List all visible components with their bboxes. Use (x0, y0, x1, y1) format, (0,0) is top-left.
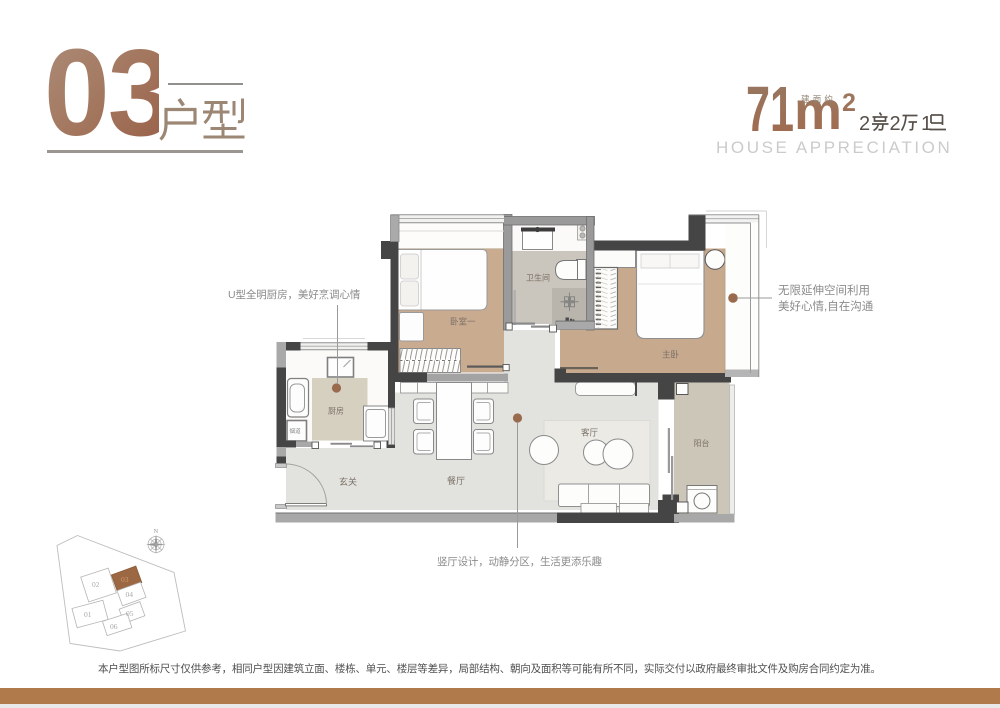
svg-text:2: 2 (890, 113, 901, 135)
svg-text:N: N (154, 528, 159, 535)
svg-text:01: 01 (84, 610, 92, 619)
svg-text:05: 05 (126, 609, 134, 618)
svg-text:03: 03 (121, 575, 129, 584)
svg-text:2: 2 (859, 113, 870, 135)
svg-text:餐厅: 餐厅 (447, 475, 465, 486)
svg-text:02: 02 (92, 580, 100, 589)
svg-text:主卧: 主卧 (662, 350, 680, 360)
svg-text:烟道: 烟道 (290, 427, 302, 435)
svg-text:卫生间: 卫生间 (526, 273, 550, 283)
svg-text:06: 06 (110, 622, 118, 631)
svg-text:客厅: 客厅 (581, 428, 599, 438)
svg-text:厨房: 厨房 (328, 406, 344, 416)
svg-text:玄关: 玄关 (339, 476, 357, 487)
svg-text:04: 04 (126, 590, 134, 599)
svg-text:卧室一: 卧室一 (450, 317, 476, 327)
svg-text:阳台: 阳台 (694, 438, 710, 448)
